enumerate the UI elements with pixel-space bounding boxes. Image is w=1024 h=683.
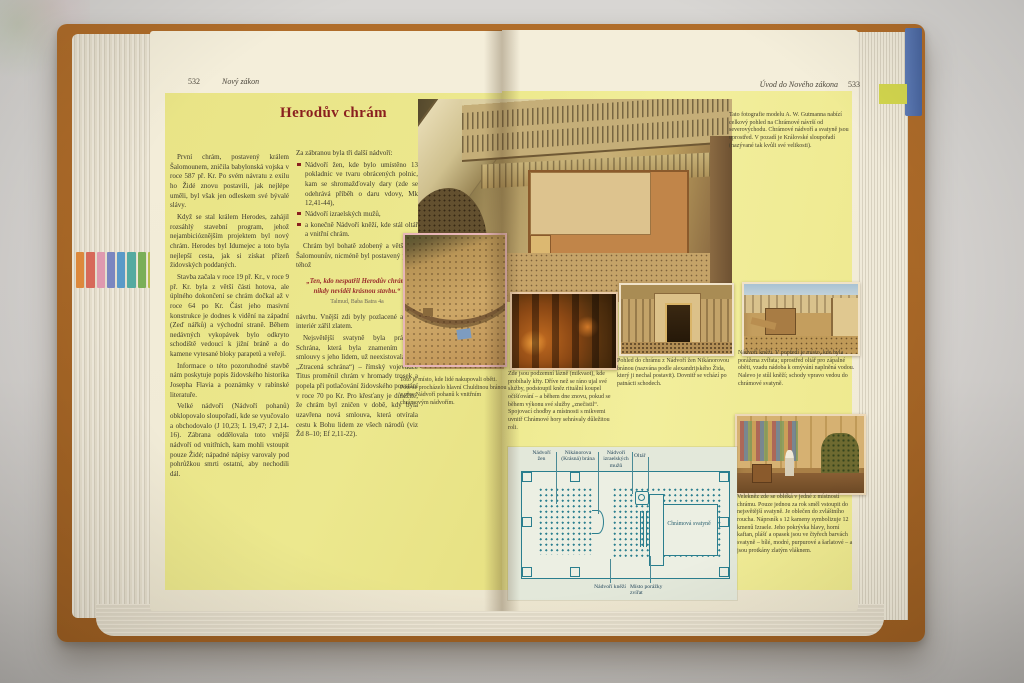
mikveh-pillars	[512, 294, 616, 368]
caption-priests: Nádvoří kněží. V popředí je místo, kde b…	[738, 350, 856, 388]
model-shadow-wall	[710, 136, 732, 302]
page-edges-left	[72, 34, 158, 618]
color-index-tabs	[76, 252, 156, 288]
bullet-item: Nádvoří izraelských mužů,	[296, 210, 418, 220]
gate-crowd-specks	[621, 342, 732, 354]
gutter-shadow	[484, 30, 520, 611]
bullet-list: Nádvoří žen, kde bylo umístěno 13 poklad…	[296, 161, 418, 240]
tab-blue	[117, 252, 125, 288]
running-header-right: Úvod do Nového zákona	[700, 80, 838, 89]
plan-label-slaughter-place: Místo porážky zvířat	[630, 584, 676, 597]
tab-teal	[127, 252, 135, 288]
pull-quote: „Ten, kdo nespatřil Herodův chrám, nikdy…	[298, 277, 416, 297]
tab-pink	[97, 252, 105, 288]
bullet-item: Nádvoří žen, kde bylo umístěno 13 poklad…	[296, 161, 418, 209]
plan-sanctuary-porch	[649, 494, 664, 566]
tab-orange	[76, 252, 84, 288]
plan-side-room	[570, 567, 580, 577]
paragraph: návrhu. Vnější zdi byly pozlacené a také…	[296, 313, 418, 332]
temple-floor-plan: Chrámová svatyně Nádvoří žen Nikánorova …	[508, 447, 737, 600]
model-court-floor	[530, 172, 651, 235]
page-number-right: 533	[848, 80, 860, 89]
caption-mikveh: Zde jsou podzemní lázně (mikvaot), kde p…	[508, 371, 616, 432]
court-of-priests-photo	[742, 282, 860, 356]
plan-side-room	[522, 517, 532, 527]
plan-court-of-women	[538, 487, 594, 555]
tab-red	[86, 252, 94, 288]
mikveh-photo	[510, 292, 618, 370]
plan-corner-room	[522, 567, 532, 577]
plan-label-line	[632, 452, 633, 494]
plan-label-line	[610, 559, 611, 583]
market-tarp	[456, 328, 471, 340]
high-priest-figure	[785, 450, 794, 476]
paragraph: Za zábranou byla tři další nádvoří:	[296, 149, 418, 159]
plan-label-line	[556, 452, 557, 504]
robing-golden-vine	[821, 433, 859, 478]
caption-model-overview: Tato fotografie modelu A. W. Gutmanna na…	[729, 112, 853, 150]
nicanor-gate-photo	[619, 283, 734, 356]
gate-wall-right	[699, 299, 732, 342]
paragraph: Chrám byl bohatě zdobený a větší než Šal…	[296, 242, 418, 271]
plan-label-court-of-women: Nádvoří žen	[528, 450, 555, 463]
high-priest-robing-photo	[735, 414, 866, 495]
chapter-tab-marker	[879, 84, 907, 104]
plan-side-room	[570, 472, 580, 482]
plan-label-court-of-priests: Nádvoří kněží	[594, 584, 626, 590]
plan-label-nicanor-gate: Nikánorova (Krásná) brána	[559, 450, 597, 463]
gate-wall-left	[621, 299, 654, 342]
paragraph: Stavba začala v roce 19 př. Kr., v roce …	[170, 273, 289, 360]
plan-label-line	[598, 452, 599, 514]
running-header-left: Nový zákon	[222, 77, 259, 86]
caption-robing: Velekněz zde se obléká v jedné z místnos…	[737, 494, 857, 555]
plan-label-altar: Oltář	[634, 453, 660, 459]
robing-chest	[752, 464, 772, 483]
plan-corner-room	[522, 472, 532, 482]
blue-fore-edge-tab	[905, 28, 922, 116]
paragraph: Když se stal králem Herodes, zahájil roz…	[170, 213, 289, 271]
priests-sanctuary-corner	[831, 298, 858, 340]
plan-sanctuary-building	[660, 504, 718, 556]
plan-corner-room	[719, 567, 729, 577]
bullet-item: a konečně Nádvoří kněží, kde stál oltář …	[296, 221, 418, 240]
text-column-1: První chrám, postavený králem Šalomounem…	[170, 153, 289, 482]
quote-attribution: Talmud, Baba Batra 4a	[296, 299, 418, 307]
paragraph: Velké nádvoří (Nádvoří pohanů) obklopova…	[170, 402, 289, 479]
plan-label-sanctuary: Chrámová svatyně	[666, 521, 712, 528]
paragraph: První chrám, postavený králem Šalomounem…	[170, 153, 289, 211]
photo-of-open-book: 532 Nový zákon Úvod do Nového zákona 533…	[0, 0, 1024, 683]
plan-label-line	[648, 457, 649, 491]
plan-corner-room	[719, 472, 729, 482]
tab-violet	[107, 252, 115, 288]
paragraph: Informace o této pozoruhodné stavbě nám …	[170, 362, 289, 401]
plan-altar	[635, 491, 649, 505]
page-number-left: 532	[188, 77, 200, 86]
priests-sky	[744, 284, 858, 295]
plan-label-court-of-israel: Nádvoří izraelských mužů	[601, 450, 631, 469]
market-stall	[423, 308, 433, 316]
tab-green	[138, 252, 146, 288]
plan-sanctuary-steps	[640, 511, 649, 547]
model-inner-court	[528, 170, 689, 263]
gate-doorway	[665, 303, 691, 346]
caption-gate: Pohled do chrámu z Nádvoří žen Nikánorov…	[617, 358, 729, 389]
page-edges-right	[854, 32, 908, 620]
plan-label-line	[650, 556, 651, 583]
